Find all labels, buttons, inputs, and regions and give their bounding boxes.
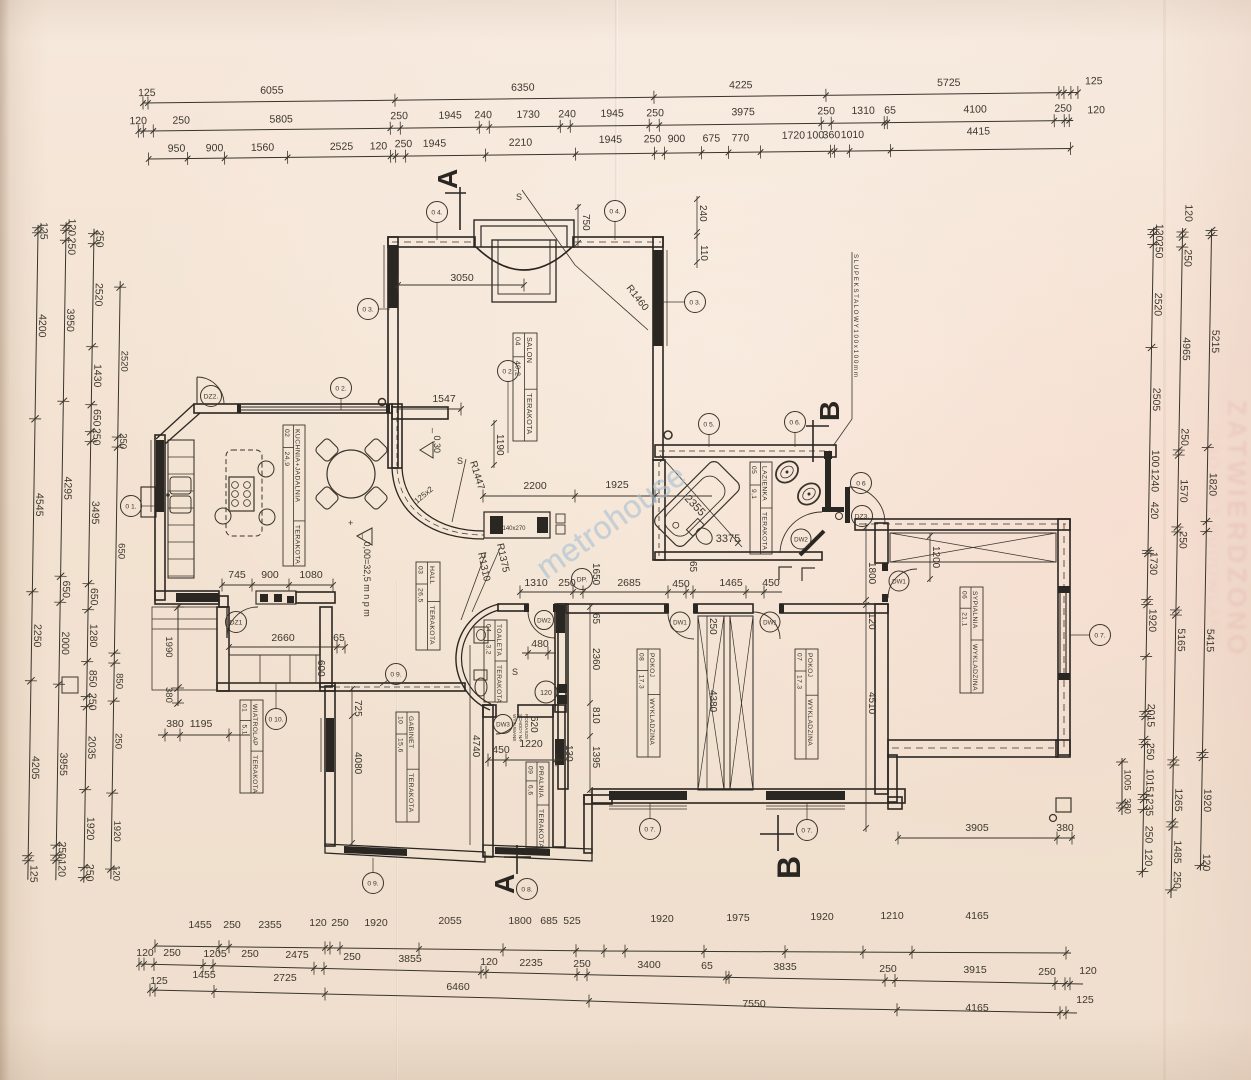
svg-text:250: 250 bbox=[573, 958, 591, 970]
svg-text:DZ2.: DZ2. bbox=[204, 393, 219, 400]
svg-text:125: 125 bbox=[1085, 75, 1103, 87]
svg-text:3375: 3375 bbox=[716, 533, 740, 545]
svg-text:745: 745 bbox=[228, 569, 246, 581]
svg-text:120: 120 bbox=[1087, 104, 1105, 116]
svg-text:120: 120 bbox=[1153, 224, 1165, 242]
svg-text:0 7.: 0 7. bbox=[644, 826, 655, 833]
svg-text:2685: 2685 bbox=[617, 577, 641, 589]
svg-text:TERAKOTA: TERAKOTA bbox=[251, 755, 258, 793]
svg-text:850: 850 bbox=[86, 670, 98, 688]
svg-text:600: 600 bbox=[315, 660, 326, 677]
svg-text:4165: 4165 bbox=[965, 910, 989, 922]
svg-text:04: 04 bbox=[513, 337, 522, 346]
svg-text:120: 120 bbox=[1079, 965, 1097, 977]
svg-text:0 9.: 0 9. bbox=[367, 880, 378, 887]
svg-text:4545: 4545 bbox=[33, 493, 45, 517]
svg-text:120: 120 bbox=[1142, 849, 1154, 867]
svg-text:ZATWIERDZONO: ZATWIERDZONO bbox=[1222, 400, 1251, 658]
svg-text:250: 250 bbox=[1144, 743, 1156, 761]
svg-text:2505: 2505 bbox=[1150, 388, 1162, 412]
svg-text:1465: 1465 bbox=[719, 577, 743, 589]
svg-text:1265: 1265 bbox=[1172, 788, 1184, 812]
svg-text:15,6: 15,6 bbox=[396, 738, 403, 753]
svg-text:1210: 1210 bbox=[880, 910, 904, 922]
svg-text:525: 525 bbox=[563, 915, 581, 927]
svg-text:17,3: 17,3 bbox=[637, 675, 644, 689]
svg-text:120: 120 bbox=[55, 859, 67, 877]
svg-text:1280: 1280 bbox=[87, 624, 99, 648]
svg-text:620: 620 bbox=[528, 716, 539, 733]
svg-text:250: 250 bbox=[1054, 103, 1072, 115]
svg-text:250: 250 bbox=[163, 947, 181, 959]
svg-text:120: 120 bbox=[866, 613, 877, 630]
svg-text:250: 250 bbox=[172, 115, 190, 127]
svg-text:3,2: 3,2 bbox=[484, 645, 491, 655]
svg-text:250: 250 bbox=[117, 433, 128, 449]
svg-text:4080: 4080 bbox=[352, 752, 363, 775]
svg-text:WYKLADZINA: WYKLADZINA bbox=[971, 644, 978, 691]
svg-text:250: 250 bbox=[343, 951, 361, 963]
svg-text:R1447: R1447 bbox=[467, 460, 486, 492]
svg-text:+: + bbox=[348, 518, 353, 528]
svg-text:65: 65 bbox=[701, 960, 713, 972]
svg-text:250: 250 bbox=[1153, 241, 1165, 259]
svg-text:650: 650 bbox=[90, 409, 102, 427]
svg-text:06: 06 bbox=[960, 591, 967, 599]
svg-text:2235: 2235 bbox=[519, 957, 543, 969]
svg-text:2355: 2355 bbox=[258, 919, 282, 931]
svg-text:1560: 1560 bbox=[251, 142, 275, 154]
svg-text:0 4.: 0 4. bbox=[609, 208, 620, 215]
svg-text:1945: 1945 bbox=[438, 109, 462, 121]
svg-text:24,9: 24,9 bbox=[283, 452, 290, 467]
svg-text:TOALETA: TOALETA bbox=[495, 624, 502, 656]
svg-text:_ 0,30: _ 0,30 bbox=[432, 427, 442, 453]
svg-text:380: 380 bbox=[1056, 822, 1074, 834]
svg-text:6055: 6055 bbox=[260, 84, 284, 96]
svg-text:125x2: 125x2 bbox=[413, 484, 436, 505]
svg-text:0 2.: 0 2. bbox=[335, 385, 346, 392]
svg-text:250: 250 bbox=[390, 110, 408, 122]
svg-text:120: 120 bbox=[129, 115, 147, 127]
svg-text:2210: 2210 bbox=[509, 137, 533, 149]
svg-text:65: 65 bbox=[687, 561, 698, 573]
svg-text:250: 250 bbox=[395, 138, 413, 150]
svg-text:3495: 3495 bbox=[89, 501, 101, 525]
svg-text:240: 240 bbox=[697, 205, 708, 222]
svg-text:650: 650 bbox=[88, 588, 100, 606]
svg-text:110: 110 bbox=[698, 245, 709, 261]
svg-text:TERAKOTA: TERAKOTA bbox=[537, 809, 544, 848]
svg-text:250: 250 bbox=[1038, 966, 1056, 978]
svg-text:1310: 1310 bbox=[851, 105, 875, 117]
svg-text:S: S bbox=[457, 456, 463, 466]
svg-text:WYKLADZINA: WYKLADZINA bbox=[806, 699, 813, 746]
svg-text:1010: 1010 bbox=[841, 129, 865, 141]
svg-text:R1460: R1460 bbox=[624, 283, 651, 313]
svg-text:PRALNIA: PRALNIA bbox=[537, 766, 544, 798]
svg-text:240: 240 bbox=[558, 108, 576, 120]
svg-text:1730: 1730 bbox=[1147, 552, 1159, 576]
svg-text:6460: 6460 bbox=[446, 981, 470, 993]
svg-text:250: 250 bbox=[1181, 249, 1193, 267]
svg-text:65: 65 bbox=[333, 632, 345, 644]
svg-text:SYPIALNIA: SYPIALNIA bbox=[971, 591, 978, 629]
svg-text:TERAKOTA: TERAKOTA bbox=[428, 606, 435, 645]
svg-text:250: 250 bbox=[879, 963, 897, 975]
svg-text:01: 01 bbox=[240, 704, 247, 712]
svg-text:125: 125 bbox=[27, 865, 39, 883]
svg-text:480: 480 bbox=[531, 638, 549, 650]
svg-text:10: 10 bbox=[396, 716, 403, 724]
svg-text:DW2: DW2 bbox=[794, 536, 808, 543]
svg-text:650: 650 bbox=[115, 543, 126, 559]
svg-text:LAZIENKA: LAZIENKA bbox=[761, 466, 768, 501]
svg-text:1945: 1945 bbox=[600, 108, 624, 120]
svg-text:3905: 3905 bbox=[965, 822, 989, 834]
svg-text:26,5: 26,5 bbox=[416, 588, 423, 603]
svg-text:1800: 1800 bbox=[508, 915, 532, 927]
svg-text:120: 120 bbox=[136, 947, 154, 959]
svg-text:6350: 6350 bbox=[511, 82, 535, 94]
svg-text:770: 770 bbox=[732, 132, 750, 144]
svg-text:250: 250 bbox=[93, 230, 105, 248]
svg-text:DW3: DW3 bbox=[496, 721, 510, 728]
svg-text:2525: 2525 bbox=[330, 141, 354, 153]
svg-text:TERAKOTA: TERAKOTA bbox=[294, 525, 301, 564]
svg-text:_ 0,00=32,5 m n p m: _ 0,00=32,5 m n p m bbox=[362, 533, 372, 617]
svg-text:4510: 4510 bbox=[866, 692, 877, 715]
svg-text:1920: 1920 bbox=[1201, 789, 1213, 813]
svg-text:2475: 2475 bbox=[285, 949, 309, 961]
svg-text:metrohouse: metrohouse bbox=[529, 456, 692, 585]
svg-text:1975: 1975 bbox=[726, 912, 750, 924]
svg-text:S: S bbox=[516, 192, 522, 202]
svg-text:120: 120 bbox=[65, 218, 77, 236]
svg-text:125: 125 bbox=[37, 222, 49, 240]
svg-text:250: 250 bbox=[241, 948, 259, 960]
svg-text:120: 120 bbox=[1200, 854, 1212, 872]
svg-text:1547: 1547 bbox=[432, 393, 456, 405]
svg-text:2200: 2200 bbox=[523, 480, 547, 492]
svg-text:65: 65 bbox=[884, 105, 896, 117]
svg-text:6,6: 6,6 bbox=[526, 785, 533, 796]
svg-text:3955: 3955 bbox=[57, 752, 69, 776]
svg-text:1920: 1920 bbox=[84, 817, 96, 841]
svg-text:250: 250 bbox=[1178, 428, 1190, 446]
svg-text:DW1: DW1 bbox=[673, 619, 687, 626]
svg-text:21,1: 21,1 bbox=[960, 612, 967, 626]
svg-text:2015: 2015 bbox=[1144, 704, 1156, 728]
svg-text:450: 450 bbox=[672, 578, 690, 590]
svg-text:3975: 3975 bbox=[731, 106, 755, 118]
svg-text:4965: 4965 bbox=[1180, 337, 1192, 361]
svg-text:250: 250 bbox=[56, 841, 68, 859]
svg-text:1920: 1920 bbox=[111, 820, 122, 841]
svg-text:0 5.: 0 5. bbox=[703, 421, 714, 428]
svg-text:250: 250 bbox=[223, 919, 241, 931]
svg-text:360: 360 bbox=[823, 129, 841, 141]
svg-text:750: 750 bbox=[580, 214, 591, 231]
svg-text:A: A bbox=[432, 169, 463, 189]
svg-text:HALL: HALL bbox=[428, 566, 435, 585]
svg-text:TERAKOTA: TERAKOTA bbox=[407, 773, 414, 812]
svg-text:900: 900 bbox=[206, 142, 224, 154]
svg-text:450: 450 bbox=[762, 577, 780, 589]
svg-text:2250: 2250 bbox=[31, 624, 43, 648]
svg-text:2520: 2520 bbox=[118, 351, 129, 372]
svg-text:TERAKOTA: TERAKOTA bbox=[495, 665, 502, 703]
svg-text:05: 05 bbox=[750, 466, 757, 474]
svg-text:0 9.: 0 9. bbox=[390, 671, 401, 678]
svg-text:3950: 3950 bbox=[64, 308, 76, 332]
svg-text:250: 250 bbox=[331, 917, 349, 929]
svg-text:0 8.: 0 8. bbox=[521, 886, 532, 893]
svg-text:0 10.: 0 10. bbox=[268, 716, 283, 723]
svg-text:120: 120 bbox=[540, 690, 552, 697]
svg-text:4740: 4740 bbox=[470, 735, 481, 758]
svg-text:1015: 1015 bbox=[1143, 769, 1155, 793]
svg-text:380: 380 bbox=[163, 687, 174, 703]
svg-text:900: 900 bbox=[668, 133, 686, 145]
svg-text:2000: 2000 bbox=[59, 631, 71, 655]
svg-text:5805: 5805 bbox=[269, 113, 293, 125]
svg-text:WIATROLAP: WIATROLAP bbox=[251, 704, 258, 746]
svg-text:5,1: 5,1 bbox=[240, 724, 247, 734]
svg-text:1205: 1205 bbox=[203, 948, 227, 960]
svg-text:250: 250 bbox=[817, 105, 835, 117]
svg-text:250: 250 bbox=[86, 693, 98, 711]
svg-text:3050: 3050 bbox=[450, 272, 474, 284]
svg-text:DW1: DW1 bbox=[892, 578, 906, 585]
svg-text:5215: 5215 bbox=[1209, 330, 1221, 354]
svg-text:380: 380 bbox=[166, 718, 184, 730]
svg-text:3835: 3835 bbox=[773, 961, 797, 973]
svg-text:S: S bbox=[512, 667, 518, 677]
svg-text:R1375: R1375 bbox=[494, 542, 511, 574]
svg-text:A: A bbox=[489, 874, 520, 894]
svg-text:250: 250 bbox=[644, 133, 662, 145]
svg-text:B: B bbox=[814, 401, 845, 421]
svg-text:1430: 1430 bbox=[91, 364, 103, 388]
svg-text:2355: 2355 bbox=[682, 493, 708, 519]
svg-text:1190: 1190 bbox=[494, 434, 505, 456]
svg-text:1570: 1570 bbox=[1177, 479, 1189, 503]
svg-text:SALON: SALON bbox=[525, 337, 534, 363]
svg-text:250: 250 bbox=[707, 618, 718, 635]
svg-text:S L U P E K S T A L O W Y 1: S L U P E K S T A L O W Y 1 0 0 x 1 0 0 … bbox=[852, 254, 859, 377]
svg-text:4415: 4415 bbox=[967, 125, 991, 137]
svg-text:1220: 1220 bbox=[519, 738, 543, 750]
svg-text:120: 120 bbox=[480, 956, 498, 968]
svg-text:4205: 4205 bbox=[29, 756, 41, 780]
svg-text:1920: 1920 bbox=[364, 917, 388, 929]
svg-text:2055: 2055 bbox=[438, 915, 462, 927]
svg-text:0 1.: 0 1. bbox=[125, 503, 136, 510]
svg-text:250: 250 bbox=[90, 428, 102, 446]
svg-text:TERAKOTA: TERAKOTA bbox=[761, 512, 768, 550]
svg-text:0 6.: 0 6. bbox=[789, 419, 800, 426]
svg-text:1395: 1395 bbox=[590, 746, 601, 769]
svg-text:2660: 2660 bbox=[271, 632, 295, 644]
svg-text:4295: 4295 bbox=[61, 476, 73, 500]
svg-text:17,3: 17,3 bbox=[795, 675, 802, 689]
svg-text:WYKLADZINA: WYKLADZINA bbox=[648, 698, 655, 745]
svg-text:420: 420 bbox=[1148, 502, 1160, 520]
svg-text:TERAKOTA: TERAKOTA bbox=[525, 393, 534, 434]
svg-text:4100: 4100 bbox=[963, 103, 987, 115]
svg-text:0 7.: 0 7. bbox=[801, 827, 812, 834]
svg-text:950: 950 bbox=[168, 143, 186, 155]
svg-text:0 3.: 0 3. bbox=[689, 299, 700, 306]
svg-text:120: 120 bbox=[370, 140, 388, 152]
svg-text:4165: 4165 bbox=[965, 1002, 989, 1014]
svg-text:1080: 1080 bbox=[299, 569, 323, 581]
svg-text:PROJEKT BUDOWLANY: PROJEKT BUDOWLANY bbox=[1204, 430, 1221, 645]
svg-text:250: 250 bbox=[83, 864, 95, 882]
svg-text:380: 380 bbox=[1122, 798, 1133, 814]
svg-text:450: 450 bbox=[492, 744, 510, 756]
svg-text:02: 02 bbox=[283, 429, 290, 437]
svg-text:125: 125 bbox=[1076, 994, 1094, 1006]
svg-text:0 6: 0 6 bbox=[856, 480, 866, 487]
svg-text:810: 810 bbox=[590, 707, 601, 724]
svg-text:120: 120 bbox=[1182, 204, 1194, 222]
svg-text:1240: 1240 bbox=[1149, 469, 1161, 493]
svg-text:3400: 3400 bbox=[637, 959, 661, 971]
svg-text:1945: 1945 bbox=[599, 134, 623, 146]
svg-text:09: 09 bbox=[526, 766, 533, 774]
svg-text:1195: 1195 bbox=[190, 718, 213, 730]
svg-text:POKOJ: POKOJ bbox=[648, 653, 655, 677]
svg-text:1235: 1235 bbox=[1143, 793, 1155, 817]
svg-text:250: 250 bbox=[112, 733, 123, 749]
svg-text:675: 675 bbox=[703, 133, 721, 145]
svg-text:DP.: DP. bbox=[577, 576, 588, 583]
svg-text:DW1: DW1 bbox=[763, 619, 777, 626]
svg-text:1800: 1800 bbox=[866, 562, 877, 585]
svg-text:1200: 1200 bbox=[930, 546, 941, 569]
svg-text:2035: 2035 bbox=[85, 736, 97, 760]
svg-text:100: 100 bbox=[1149, 450, 1161, 468]
svg-text:POKOJ: POKOJ bbox=[806, 653, 813, 677]
svg-text:07: 07 bbox=[795, 653, 802, 661]
svg-text:65: 65 bbox=[590, 613, 601, 625]
svg-text:1455: 1455 bbox=[192, 969, 216, 981]
svg-text:650: 650 bbox=[60, 580, 72, 598]
svg-text:7550: 7550 bbox=[742, 998, 766, 1010]
svg-text:1005: 1005 bbox=[1122, 769, 1133, 790]
svg-text:4200: 4200 bbox=[36, 314, 48, 338]
svg-text:2520: 2520 bbox=[92, 283, 104, 307]
svg-text:0 3.: 0 3. bbox=[362, 306, 373, 313]
svg-text:3915: 3915 bbox=[963, 964, 987, 976]
svg-text:GABINET: GABINET bbox=[407, 716, 414, 749]
svg-text:2725: 2725 bbox=[273, 972, 297, 984]
svg-text:250: 250 bbox=[65, 237, 77, 255]
svg-text:120: 120 bbox=[309, 917, 327, 929]
svg-text:1945: 1945 bbox=[423, 138, 447, 150]
svg-text:240: 240 bbox=[474, 109, 492, 121]
svg-text:03: 03 bbox=[416, 566, 423, 574]
svg-text:4380: 4380 bbox=[707, 690, 718, 713]
svg-text:KUCHNIA+JADALNIA: KUCHNIA+JADALNIA bbox=[294, 429, 301, 503]
svg-text:1920: 1920 bbox=[810, 911, 834, 923]
svg-text:0 4.: 0 4. bbox=[431, 209, 442, 216]
svg-text:1455: 1455 bbox=[188, 919, 212, 931]
svg-text:0 7.: 0 7. bbox=[1094, 632, 1105, 639]
svg-text:250: 250 bbox=[1142, 826, 1154, 844]
svg-text:685: 685 bbox=[540, 915, 558, 927]
svg-text:250: 250 bbox=[646, 107, 664, 119]
svg-text:850: 850 bbox=[113, 673, 124, 689]
svg-text:1990: 1990 bbox=[163, 636, 174, 657]
svg-text:725: 725 bbox=[352, 700, 363, 717]
svg-text:1720: 1720 bbox=[782, 130, 806, 142]
svg-text:5165: 5165 bbox=[1175, 628, 1187, 652]
svg-text:DZ1: DZ1 bbox=[230, 619, 243, 626]
svg-text:5725: 5725 bbox=[937, 77, 961, 89]
svg-text:250: 250 bbox=[558, 577, 576, 589]
svg-text:125: 125 bbox=[150, 975, 168, 987]
svg-text:2360: 2360 bbox=[590, 648, 601, 671]
svg-text:WYSUWANE: WYSUWANE bbox=[512, 714, 517, 741]
svg-text:900: 900 bbox=[261, 569, 279, 581]
svg-text:9,1: 9,1 bbox=[750, 489, 757, 499]
svg-text:140x270: 140x270 bbox=[502, 526, 526, 532]
svg-text:1485: 1485 bbox=[1171, 840, 1183, 864]
svg-text:DW2: DW2 bbox=[537, 617, 551, 624]
svg-text:08: 08 bbox=[637, 653, 644, 661]
svg-text:1920: 1920 bbox=[650, 913, 674, 925]
svg-text:250: 250 bbox=[1171, 871, 1183, 889]
svg-text:0 2.: 0 2. bbox=[502, 368, 513, 375]
svg-text:R1310: R1310 bbox=[475, 551, 492, 583]
svg-text:1730: 1730 bbox=[516, 109, 540, 121]
svg-text:125: 125 bbox=[138, 87, 156, 99]
svg-text:4225: 4225 bbox=[729, 79, 753, 91]
svg-text:B: B bbox=[771, 856, 807, 879]
svg-text:2520: 2520 bbox=[1152, 293, 1164, 317]
svg-text:120: 120 bbox=[110, 865, 121, 881]
svg-text:1920: 1920 bbox=[1146, 609, 1158, 633]
svg-text:3855: 3855 bbox=[398, 953, 422, 965]
svg-text:250: 250 bbox=[1177, 531, 1189, 549]
